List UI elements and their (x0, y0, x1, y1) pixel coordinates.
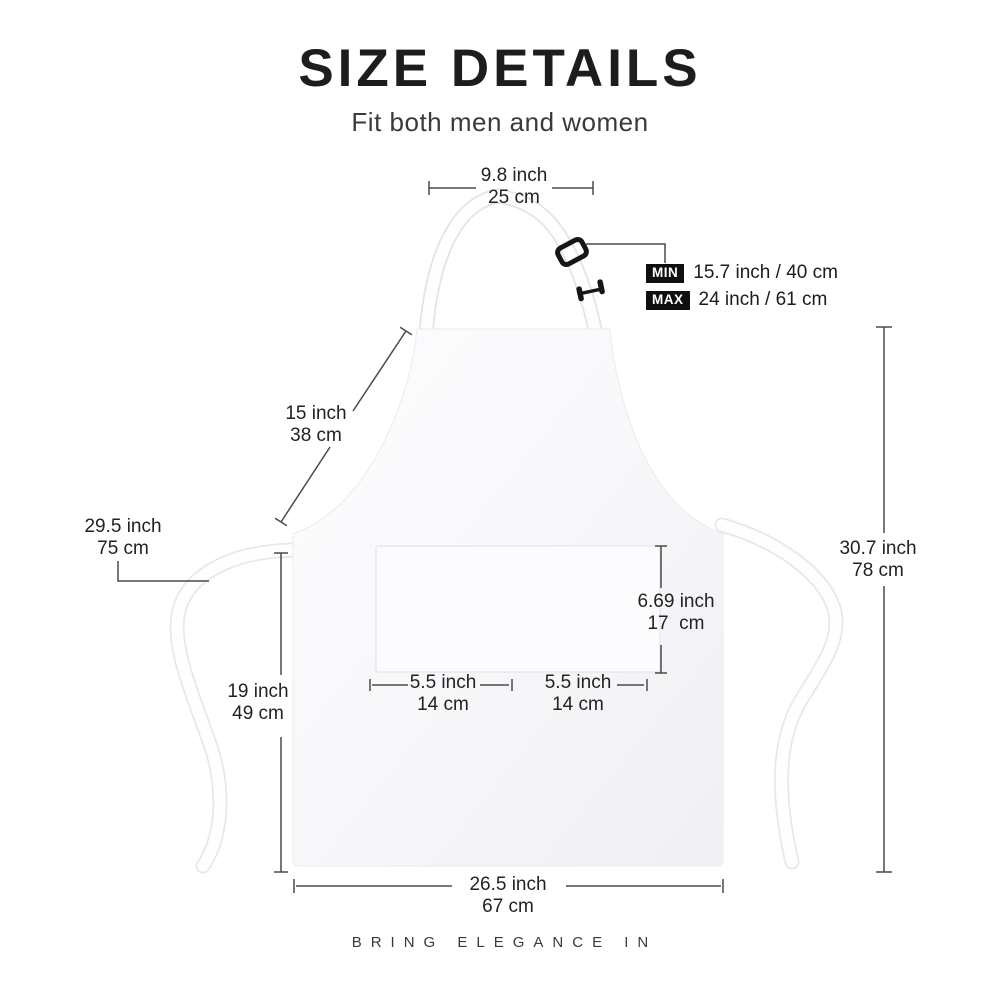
dim-body-height-cm: 49 cm (227, 703, 288, 725)
apron-diagram (0, 0, 1000, 1000)
dim-pocket-width-left-inch: 5.5 inch (410, 672, 477, 694)
dim-pocket-width-right-cm: 14 cm (545, 694, 612, 716)
dim-bottom-width-cm: 67 cm (469, 896, 546, 918)
dim-body-height: 19 inch 49 cm (227, 681, 288, 725)
dim-pocket-width-left: 5.5 inch 14 cm (410, 672, 477, 716)
dim-neck-width-inch: 9.8 inch (481, 165, 548, 187)
apron-pocket (376, 546, 660, 672)
dim-bib-height: 15 inch 38 cm (285, 403, 346, 447)
dim-bottom-width: 26.5 inch 67 cm (469, 874, 546, 918)
dim-overall-height-inch: 30.7 inch (839, 538, 916, 560)
dim-pocket-width-right-inch: 5.5 inch (545, 672, 612, 694)
dim-neck-width-cm: 25 cm (481, 187, 548, 209)
strap-max-value: 24 inch / 61 cm (699, 289, 828, 311)
dim-overall-height: 30.7 inch 78 cm (839, 538, 916, 582)
right-waist-tie (722, 525, 836, 862)
max-badge: MAX (646, 291, 690, 310)
strap-min-value: 15.7 inch / 40 cm (693, 262, 838, 284)
dim-line-overall-height (876, 327, 892, 872)
dim-pocket-width-left-cm: 14 cm (410, 694, 477, 716)
dim-neck-width: 9.8 inch 25 cm (481, 165, 548, 209)
size-details-infographic: SIZE DETAILS Fit both men and women (0, 0, 1000, 1000)
dim-pocket-height-inch: 6.69 inch (637, 591, 714, 613)
dim-line-buckle-connector (586, 244, 665, 263)
dim-pocket-height-cm: 17 cm (637, 613, 714, 635)
dim-tie-length-inch: 29.5 inch (84, 516, 161, 538)
dim-tie-length-cm: 75 cm (84, 538, 161, 560)
strap-max-row: MAX 24 inch / 61 cm (646, 289, 827, 311)
strap-min-row: MIN 15.7 inch / 40 cm (646, 262, 838, 284)
dim-bottom-width-inch: 26.5 inch (469, 874, 546, 896)
min-badge: MIN (646, 264, 684, 283)
dim-pocket-height: 6.69 inch 17 cm (637, 591, 714, 635)
dim-overall-height-cm: 78 cm (839, 560, 916, 582)
dim-body-height-inch: 19 inch (227, 681, 288, 703)
dim-bib-height-cm: 38 cm (285, 425, 346, 447)
footer-slogan: BRING ELEGANCE IN (0, 934, 1000, 951)
dim-pocket-width-right: 5.5 inch 14 cm (545, 672, 612, 716)
dim-bib-height-inch: 15 inch (285, 403, 346, 425)
dim-tie-length: 29.5 inch 75 cm (84, 516, 161, 560)
